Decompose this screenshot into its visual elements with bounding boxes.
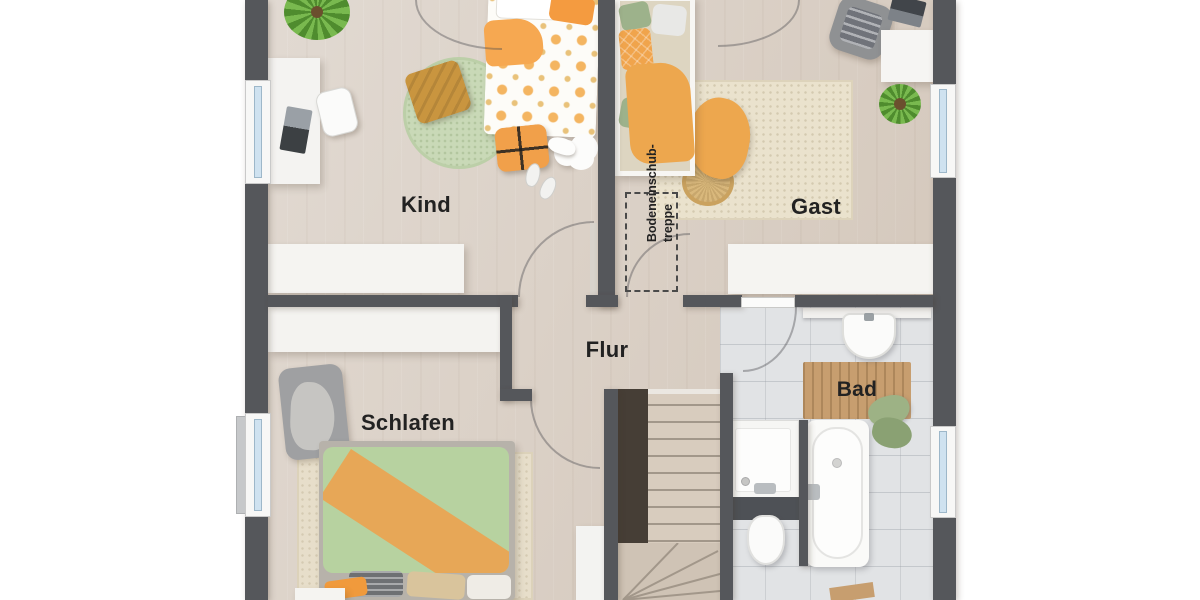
kind-gift-pillow [494, 123, 550, 172]
schlafen-east-wall [500, 295, 512, 399]
kind-gast-divider-wall [598, 0, 615, 307]
kind-south-wall [268, 295, 518, 307]
attic-stairs-outline: Bodeneinschub- treppe [625, 192, 678, 292]
shower-tray [727, 420, 799, 500]
kind-sideboard [268, 244, 464, 293]
room-label-gast: Gast [786, 194, 846, 220]
faucet-icon [864, 313, 874, 321]
flur-corner-cabinet [576, 526, 606, 600]
room-label-flur: Flur [577, 337, 637, 363]
schlafen-duvet [323, 447, 509, 573]
schlafen-wardrobe [268, 303, 500, 352]
bath-partition-wall [799, 420, 808, 566]
schlafen-window-glass [254, 419, 262, 511]
room-label-kind: Kind [396, 192, 456, 218]
faucet-icon [754, 483, 776, 494]
door-post-wall [586, 295, 618, 307]
bathtub [806, 420, 869, 567]
plant-icon [879, 84, 921, 124]
gast-desk [881, 30, 933, 82]
gast-south-wall-left [683, 295, 742, 307]
schlafen-bed [319, 441, 515, 600]
room-label-bad: Bad [803, 378, 911, 402]
toilet [747, 515, 785, 565]
gast-bed-green-pillow [618, 0, 653, 32]
staircase-treads [648, 389, 720, 543]
kind-bed-orange-pillow [548, 0, 596, 26]
schlafen-south-stub-wall [500, 389, 532, 401]
floor-plan: Bodeneinschub- treppe [0, 0, 1200, 600]
schlafen-throw [323, 449, 509, 573]
gast-south-wall-right [795, 295, 933, 307]
bad-window-glass [939, 431, 947, 513]
staircase-top-edge [648, 389, 720, 394]
bad-door-panel [741, 297, 795, 308]
stairwell-void [618, 389, 650, 567]
bathroom-west-wall [720, 373, 733, 600]
attic-stairs-label-line2: treppe [660, 204, 676, 242]
staircase-winders [618, 543, 733, 600]
gast-armchair-pillow [838, 5, 883, 50]
schlafen-nightstand [295, 588, 345, 600]
kind-door-panel [590, 223, 597, 295]
schlafen-pillow-white [467, 575, 511, 599]
attic-stairs-label-line1: Bodeneinschub- [643, 144, 659, 242]
kind-window-glass [254, 86, 262, 178]
stairwell-west-wall [604, 389, 618, 600]
shower-drain-icon [741, 477, 750, 486]
schlafen-pillow-tan [406, 571, 466, 600]
gast-bed-white-pillow [651, 3, 688, 36]
gast-window-glass [939, 89, 947, 173]
gast-sideboard [728, 244, 933, 294]
room-label-schlafen: Schlafen [352, 410, 464, 436]
bathtub-drain-icon [832, 458, 842, 468]
